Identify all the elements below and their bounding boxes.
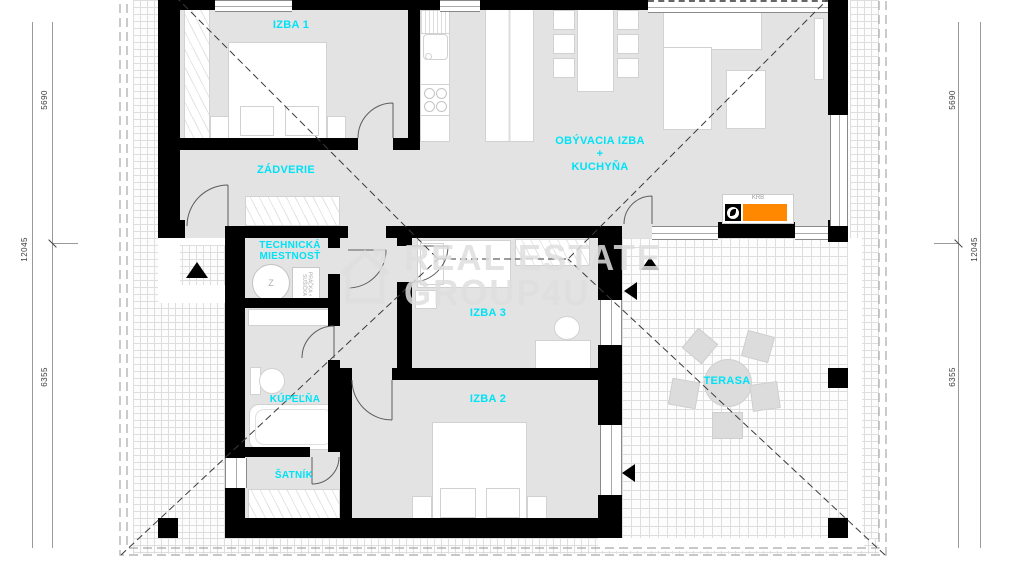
dining-chair [617,10,639,30]
label-kupelna: KÚPEĽŇA [270,394,320,405]
wall-izba3-left-a [397,238,412,246]
floor-plan: KRB Z PRÁČKA + SUŠIČKA [0,0,1011,570]
nightstand [412,496,432,520]
window-izba1 [215,0,292,12]
dim-left-top: 5690 [40,90,49,110]
boiler-label: Z [268,278,274,288]
nightstand [210,116,229,140]
dining-chair [617,34,639,54]
column-terrace-east [828,368,848,388]
wall-izba1-bottom-b [393,138,420,150]
window-kitchen [440,0,480,12]
label-izba2: IZBA 2 [470,393,506,405]
stove-burner [436,101,447,112]
terrace-chair [749,381,780,412]
nightstand [415,290,437,309]
nightstand [327,116,346,140]
hall-cabinet [248,309,338,326]
dim-right-middle: 12045 [970,237,979,262]
stove-burner [436,88,447,99]
glass-living-east [830,115,848,226]
paver-strip-right-top [850,0,879,238]
dining-chair [553,10,575,30]
wall-izba3-left-b [397,282,412,368]
label-zadverie: ZÁDVERIE [257,164,315,176]
wall-left-upper [158,0,180,232]
dim-right-bottom: 6355 [948,367,957,387]
dining-table [577,5,614,92]
wall-izba3-izba2-a [340,368,352,380]
pillow [420,243,444,285]
stove-burner [424,88,435,99]
wardrobe-izba3 [515,239,590,266]
wall-izba1-bottom-a [158,138,358,150]
wall-izba1-kitchen [408,0,420,150]
toilet-bowl [259,368,285,394]
dim-left-bottom: 6355 [40,367,49,387]
door-marker-icon [641,257,659,270]
wall-technicka-right-a [328,238,340,248]
wall-kupelna-right-a [328,308,340,326]
stove-burner [424,101,435,112]
dining-chair [553,34,575,54]
wall-satnik-izba2 [340,380,352,526]
wall-kupelna-right-b [328,360,340,452]
glass-living-south-b [795,226,828,240]
dim-line-right-outer [980,22,981,548]
fireplace-firebox [743,204,787,221]
chimney-icon [725,204,741,221]
window-izba2 [600,425,622,495]
sofa-top [663,8,762,50]
window-satnik [225,458,247,488]
terrace-walkway-bottom [598,538,864,551]
label-living-line3: KUCHYŇA [571,161,628,173]
pillow [486,488,520,518]
nightstand [527,496,547,520]
wall-east-izba3-a [598,226,622,300]
fireplace-label: KRB [723,195,793,201]
dim-line-left-outer [32,22,33,548]
stove [420,84,450,116]
terrace-walkway-right [848,238,862,538]
pillow [285,106,319,136]
wall-living-south-fireplace [718,222,795,238]
fridge [420,10,450,34]
faucet-dot [425,53,432,60]
kitchen-island [485,5,534,142]
label-izba3: IZBA 3 [470,307,506,319]
washer-dryer: PRÁČKA + SUŠIČKA [292,267,320,302]
label-living: OBÝVACIA IZBA + KUCHYŇA [555,135,644,174]
label-terasa: TERASA [703,375,750,387]
fireplace: KRB [722,194,794,224]
dim-right-top: 5690 [948,90,957,110]
dim-line-left-inner [52,22,53,548]
door-marker-icon [624,282,637,300]
wall-zadverie-corner [158,220,185,238]
pillow [240,106,274,136]
sofa-side [663,47,712,130]
window-living-top [648,0,828,13]
wall-zadverie-bottom-a [228,226,348,238]
wall-izba3-izba2-b [392,368,610,380]
terrace-chair [712,412,743,439]
label-living-line2: + [597,148,604,160]
window-izba3 [600,300,622,345]
tv-board [814,18,824,80]
column-terrace-corner [828,518,848,538]
wall-left-lower-a [225,226,245,458]
dim-left-middle: 12045 [20,237,29,262]
porch-path-horizontal [158,285,228,303]
wall-east-izba2-a [598,378,622,425]
paver-strip-left [133,0,158,245]
label-izba1: IZBA 1 [273,19,309,31]
desk-chair [554,316,580,340]
coffee-table [726,70,766,129]
bathtub-inner [255,409,333,445]
door-marker-icon [622,464,635,482]
column-porch [158,518,178,538]
dining-chair [553,58,575,78]
wall-bottom [233,518,622,538]
label-satnik: ŠATNÍK [275,470,313,481]
wall-kupelna-satnik [245,447,310,457]
label-technicka-line1: TECHNICKÁ [259,240,321,251]
label-technicka: TECHNICKÁ MIESTNOSŤ [259,240,321,262]
entrance-arrow-icon [186,262,208,278]
wall-right-upper [828,0,848,115]
dining-chair [617,58,639,78]
boiler: Z [252,264,290,302]
washer-dryer-label: PRÁČKA + SUŠIČKA [301,268,312,301]
wall-zadverie-bottom-b [386,226,610,238]
label-technicka-line2: MIESTNOSŤ [259,251,320,262]
wardrobe-izba1 [184,8,210,140]
terrace-chair [668,378,700,409]
glass-living-south-a [652,226,718,240]
label-living-line1: OBÝVACIA IZBA [555,135,644,147]
wardrobe-zadverie [245,196,340,226]
pillow [440,488,476,518]
dim-ext-right [934,243,958,244]
dim-ext-left [52,243,78,244]
wall-east-izba3-b [598,345,622,378]
wall-technicka-bottom [245,298,340,308]
dim-line-right-inner [958,22,959,548]
